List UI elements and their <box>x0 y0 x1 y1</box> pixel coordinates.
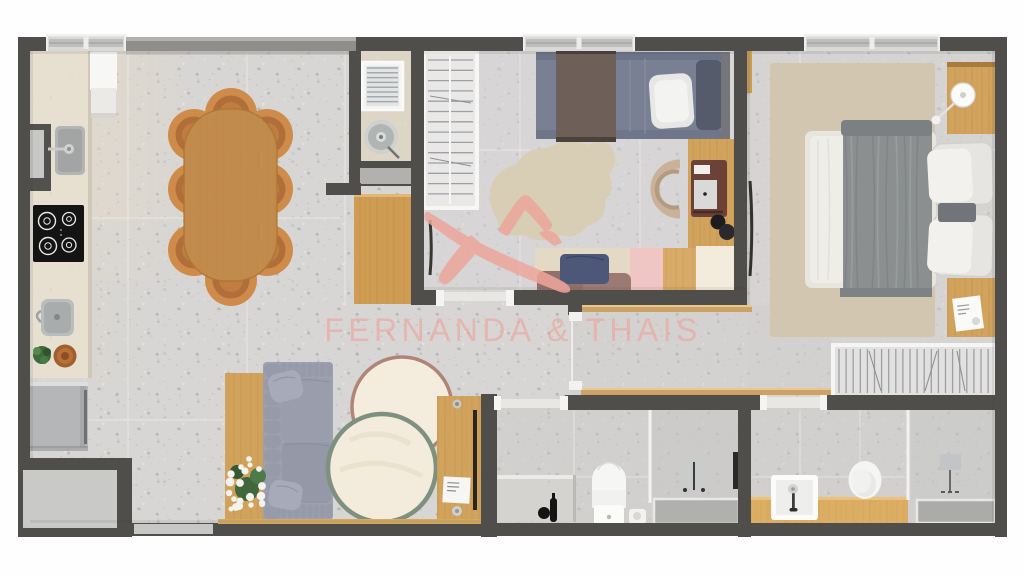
svg-text:FERNANDA & THAIS: FERNANDA & THAIS <box>324 312 701 348</box>
